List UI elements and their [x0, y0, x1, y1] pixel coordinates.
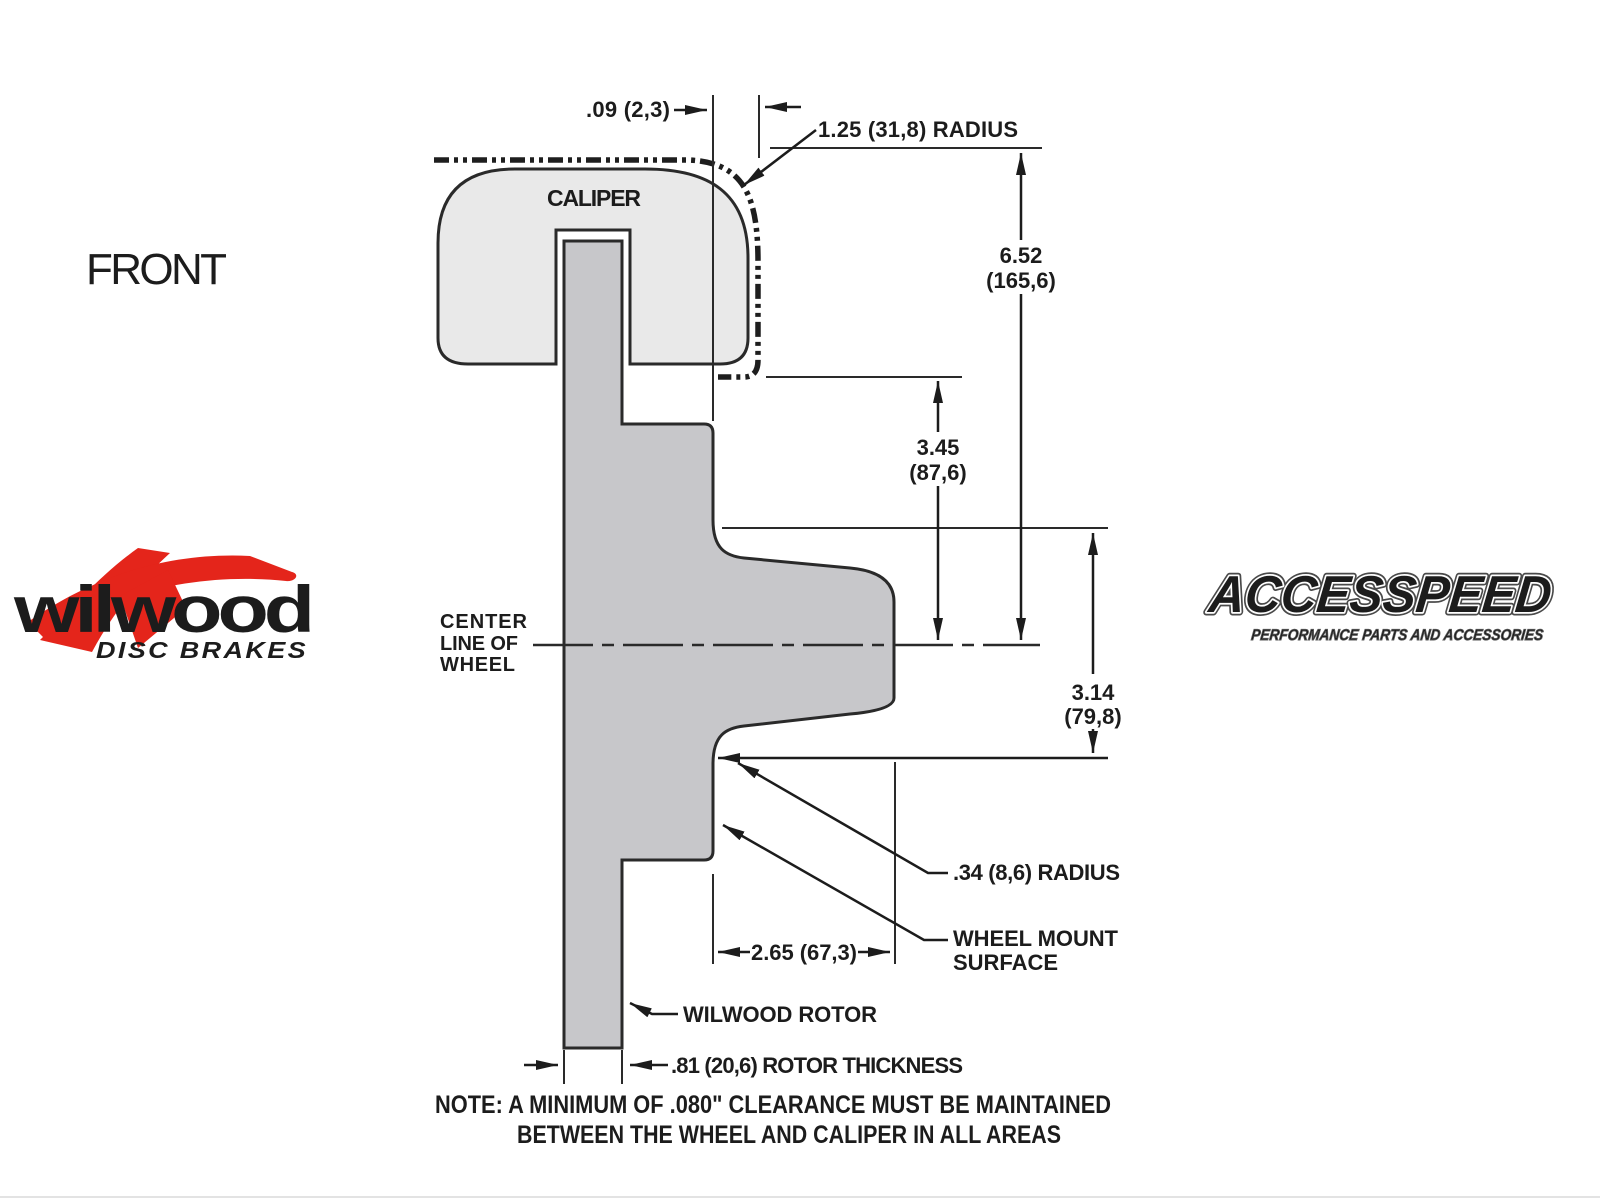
- dim-314-metric: (79,8): [1064, 704, 1121, 729]
- dim-265-value: 2.65 (67,3): [751, 940, 857, 965]
- dim-radius-top: 1.25 (31,8) RADIUS: [818, 117, 1018, 142]
- note-line1: NOTE: A MINIMUM OF .080" CLEARANCE MUST …: [435, 1091, 1111, 1119]
- centerline-label-line3: WHEEL: [440, 654, 515, 676]
- centerline-label-line2: LINE OF: [440, 633, 518, 655]
- dim-652-metric: (165,6): [986, 268, 1056, 293]
- front-view-label: FRONT: [86, 245, 228, 294]
- dim-314-value: 3.14: [1072, 680, 1116, 705]
- leader-radius-hat: [738, 763, 948, 873]
- dim-rotor-thickness: .81 (20,6) ROTOR THICKNESS: [671, 1053, 963, 1078]
- brake-clearance-diagram-page: FRONT CALIPER CENTER LINE OF WHEEL .09 (…: [0, 0, 1600, 1200]
- accesspeed-tagline: PERFORMANCE PARTS AND ACCESSORIES: [1250, 627, 1544, 644]
- dim-345-metric: (87,6): [909, 460, 966, 485]
- leader-radius-top: [744, 130, 816, 185]
- accesspeed-logo: ACCESSPEED ACCESSPEED ACCESSPEED PERFORM…: [1202, 566, 1554, 644]
- dim-clearance-top: .09 (2,3): [586, 97, 670, 122]
- leader-wheel-mount: [723, 825, 948, 940]
- centerline-label-line1: CENTER: [440, 611, 528, 633]
- caliper-label: CALIPER: [547, 185, 641, 211]
- dim-652-value: 6.52: [1000, 243, 1043, 268]
- wheel-mount-surface-label-line2: SURFACE: [953, 950, 1058, 975]
- wilwood-logo: wilwood DISC BRAKES: [13, 548, 310, 663]
- wilwood-logo-wordmark: wilwood: [13, 572, 310, 646]
- diagram-canvas: FRONT CALIPER CENTER LINE OF WHEEL .09 (…: [0, 0, 1600, 1200]
- leader-rotor: [630, 1003, 678, 1014]
- wilwood-logo-tagline: DISC BRAKES: [96, 637, 308, 663]
- accesspeed-wordmark: ACCESSPEED: [1205, 566, 1555, 624]
- note-line2: BETWEEN THE WHEEL AND CALIPER IN ALL ARE…: [517, 1121, 1061, 1149]
- dim-345-value: 3.45: [917, 435, 960, 460]
- wheel-mount-surface-label-line1: WHEEL MOUNT: [953, 926, 1119, 951]
- rotor-callout-label: WILWOOD ROTOR: [683, 1002, 877, 1027]
- dim-radius-hat: .34 (8,6) RADIUS: [953, 860, 1120, 885]
